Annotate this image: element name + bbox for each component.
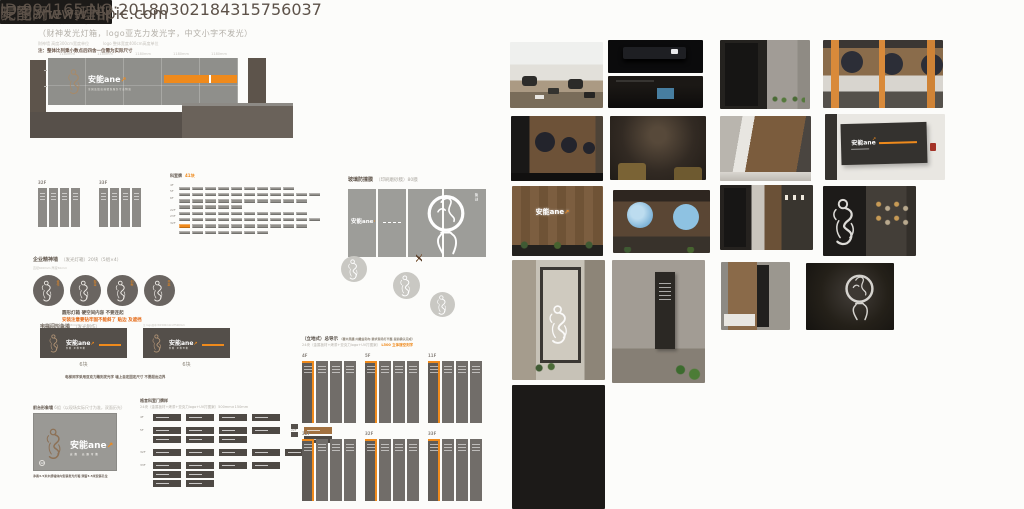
pillar-right: [248, 58, 266, 105]
plate-row: 5F22F: [140, 427, 310, 445]
brand-logo: 安能ane↗安能 无限可能: [66, 338, 95, 350]
photo-standing-sign: [512, 385, 605, 509]
floor-banner-group: 32F: [38, 180, 80, 227]
door-plate: [219, 414, 247, 421]
room-table-row: 5F: [170, 189, 320, 195]
floor-label: 23F: [170, 214, 179, 218]
photo-reception: [721, 262, 790, 330]
door-plate: [186, 462, 214, 469]
hand-ring-illustration: [410, 191, 482, 255]
door-plate-rows: 4F5F22F32F33F: [140, 414, 310, 489]
floor-label: 5F: [140, 427, 148, 432]
spirit-circle: 共赢: [144, 275, 175, 306]
door-plate: [186, 449, 214, 456]
brand-logo: 安能ane↗ 全国连锁高端精准服务专业物流: [88, 67, 131, 91]
floor-label: 33F: [140, 462, 148, 467]
banner-panel: [316, 361, 328, 423]
photo-logo-board: 安能ane↗: [825, 114, 945, 180]
table-title: 科室牌: [170, 173, 182, 178]
banner-panel: [407, 439, 419, 501]
floor-label: 4F: [140, 414, 148, 419]
photo-wall-sign: [612, 260, 705, 383]
brand-logo-text: 安能ane: [88, 75, 121, 84]
door-plate: [186, 480, 214, 487]
plate-stack: [186, 427, 214, 445]
frosted-door: [540, 267, 581, 363]
caishen-figure-icon: [48, 330, 61, 356]
directory-group: 5F: [365, 353, 419, 423]
photo-dark-logo-wall: [610, 116, 706, 180]
dim-note: W1500mm×H500mm 厚80mm: [40, 323, 79, 327]
watermark-circle: [393, 272, 420, 299]
door-plate: [219, 436, 247, 443]
floor-label: 22F: [170, 208, 179, 212]
room-chip: [309, 218, 320, 222]
floor-label: 32F: [38, 180, 80, 185]
banner-row: [365, 439, 419, 501]
banner-panel: [470, 439, 482, 501]
plate-stack: [252, 427, 280, 436]
banner-panel: [316, 439, 328, 501]
floor-label: 32F: [365, 431, 419, 436]
door-plate: [252, 462, 280, 469]
brand-logo-subtext: 安能 无限可能: [70, 452, 113, 456]
plate-stack: [153, 427, 181, 445]
brand-logo-subtext: 安能 无限可能: [169, 347, 198, 350]
banner-panel: [344, 361, 356, 423]
section-title-row: 玻璃防撞膜（印刷磨砂膜）80膜: [348, 166, 498, 185]
arrow-icon: ↗: [107, 441, 114, 450]
logo-board: 安能ane↗: [840, 122, 927, 165]
banner-panel: [393, 439, 405, 501]
banner-row: [302, 361, 356, 423]
room-chip: [257, 199, 268, 203]
spirit-wall-section: 企业精神墙（发光灯箱）20块（5组×4） 直径600mm 厚度50mm 合作担当…: [33, 246, 223, 323]
brand-logo-subtext: 全国连锁高端精准服务专业物流: [88, 87, 131, 91]
caishen-figure-icon: [77, 278, 92, 303]
stock-id-watermark: ID:994165 NO:20180302184315756037: [0, 0, 322, 19]
floor-label: 5F: [170, 189, 179, 193]
section-spec-row: 24块（金属板材+烤漆+亚克力logo+UV打图案） L500 立体镂空刻字: [302, 343, 487, 348]
banner-row: [99, 188, 141, 227]
banner-panel: [330, 361, 342, 423]
door-plate: [186, 414, 214, 421]
section-title-row: （立地式）总导示 （覆木黑膜 内雕金和布 要求现场打平整 提前确认完成）: [302, 336, 487, 342]
section-subspec: 直径600mm 厚度50mm: [33, 266, 223, 270]
door-plate: [219, 462, 247, 469]
caishen-figure-icon: [114, 278, 129, 303]
tick-mark: [44, 70, 47, 71]
spirit-circle: 创新: [107, 275, 138, 306]
room-chip: [296, 224, 307, 228]
directory-group: 32F: [365, 431, 419, 501]
plate-stack: [219, 449, 247, 458]
banner-panel: [302, 439, 314, 501]
door-plates-section: 格言科室门牌样 24块（金属板材+烤漆+亚克力logo+UV打图案）500mm×…: [140, 398, 310, 493]
directory-section: （立地式）总导示 （覆木黑膜 内雕金和布 要求现场打平整 提前确认完成） 24块…: [302, 336, 487, 501]
spirit-circle: 担当: [70, 275, 101, 306]
photo-lounge: [510, 42, 603, 108]
elevation-drawing: 1180mm1180mm1180mm1180mm1180mm 安能ane↗ 全国…: [30, 52, 330, 144]
dim-label: 1180mm: [162, 52, 200, 56]
plate-stack: [219, 462, 247, 471]
banner-panel: [38, 188, 47, 227]
circle-label: 合作: [56, 280, 60, 286]
section-spec: （印刷磨砂膜）80膜: [376, 178, 418, 183]
caishen-figure-icon: [44, 422, 66, 464]
section-spec: （发光灯箱）20块（5组×4）: [61, 258, 121, 263]
room-chip: [205, 231, 216, 235]
section-title: 企业精神墙: [33, 257, 58, 263]
spec-right: logo 整体宽度400cm高度单位: [103, 41, 159, 46]
room-chip: [283, 224, 294, 228]
banner-panel: [365, 361, 377, 423]
banner-row: [428, 439, 482, 501]
tick-mark: [44, 86, 47, 87]
room-plate-table: 科室牌41块 4F5F6F22F23F32F: [170, 173, 320, 233]
banner-panel: [60, 188, 69, 227]
photo-dark-interior: [608, 76, 703, 108]
plate-stack: [153, 449, 181, 458]
door-plate: [153, 471, 181, 478]
circle-label: 共赢: [167, 280, 171, 286]
door-plate: [186, 436, 214, 443]
plate-stack: [252, 414, 280, 423]
brand-logo-text: 安能ane: [351, 219, 373, 225]
room-chip: [296, 199, 307, 203]
caishen-figure-icon: [151, 278, 166, 303]
floor-label: 5F: [365, 353, 419, 358]
count-label: 6块: [143, 361, 230, 368]
design-proof-sheet: 33层形象墙1组 （财神发光灯箱，logo亚克力发光字，中文小字不发光） 财神墙…: [0, 0, 1024, 509]
section-title: （立地式）总导示: [302, 337, 338, 342]
banner-panel: [456, 361, 468, 423]
banner-panel: [428, 361, 440, 423]
banner-panel: [456, 439, 468, 501]
elevator-wall-section: 电梯间形象墙（发光制作） W1500mm×H500mm 厚80mm 注 logo…: [40, 313, 300, 332]
room-chip: [283, 199, 294, 203]
floor-banner-sets: 32F33F: [38, 180, 141, 227]
floor-label: 11F: [428, 353, 482, 358]
banner-panel: [379, 361, 391, 423]
photo-door-sign: [720, 185, 813, 250]
floor-label: 32F: [140, 449, 148, 454]
glass-film-panel: 安能ane· 聚创: [348, 189, 486, 257]
directory-group: 11F: [428, 353, 482, 423]
dim-label: 1180mm: [48, 52, 86, 56]
room-chip: [192, 231, 203, 235]
photo-pillar-sign: [720, 40, 810, 109]
sheet-subtitle: （财神发光灯箱，logo亚克力发光字，中文小字不发光）: [38, 28, 338, 39]
banner-row: [302, 439, 356, 501]
section-title: 格言科室门牌样: [140, 398, 310, 404]
door-plate: [252, 449, 280, 456]
floor-label: 32F: [170, 221, 179, 225]
room-table-row: [170, 227, 320, 233]
plate-stack: [153, 414, 181, 423]
directory-group: 4F: [302, 353, 356, 423]
plate-stack: [186, 462, 214, 489]
plate-stack: [252, 449, 280, 458]
room-chip-grid: 4F5F6F22F23F32F: [170, 183, 320, 233]
sheet-specs: 财神墙 高度300cm宽度单位logo 整体宽度400cm高度单位: [38, 41, 338, 47]
photo-lightbox-sign: [608, 40, 703, 73]
banner-panel: [99, 188, 108, 227]
plate-stack: [219, 414, 247, 423]
plate-stack: [219, 427, 247, 445]
floor-label: 6F: [170, 196, 179, 200]
banner-panel: [365, 439, 377, 501]
table-badge: 41块: [185, 173, 195, 178]
brand-logo: 安能ane↗安能 无限可能: [70, 438, 113, 456]
banner-panel: [132, 188, 141, 227]
section-note: 电梯间字采用亚克力雕刻发光字 墙上自定固定尺寸 不要超出边界: [65, 375, 165, 380]
counter-left: [30, 112, 182, 138]
floor-label: 33F: [428, 431, 482, 436]
banner-panel: [442, 439, 454, 501]
banner-panel: [110, 188, 119, 227]
elevator-box: 安能ane↗安能 无限可能: [143, 328, 230, 358]
brand-logo-text: 安能ane: [70, 441, 107, 451]
panel-cell: 安能ane·: [348, 189, 378, 257]
section-spec: 24块（金属板材+烤漆+亚克力logo+UV打图案）: [302, 343, 380, 347]
photo-blue-circle-lightboxes: [613, 190, 710, 253]
door-plate: [186, 427, 214, 434]
directory-group: 33F: [428, 431, 482, 501]
counter-right: [182, 103, 293, 138]
plate-stack: [186, 414, 214, 423]
banner-row: [38, 188, 80, 227]
banner-panel: [344, 439, 356, 501]
brand-logo-text: 安能ane: [169, 340, 193, 347]
spec-left: 财神墙 高度300cm宽度单位: [38, 41, 89, 46]
spirit-circle: 合作: [33, 275, 64, 306]
section-spec: 24块（金属板材+烤漆+亚克力logo+UV打图案）500mm×150mm: [140, 405, 310, 410]
banner-row: [428, 361, 482, 423]
dim-note: 注 logo居中 W1500mm×H500mm: [143, 323, 185, 327]
section-spec-accent: L500 立体镂空刻字: [381, 343, 413, 347]
arrow-icon: ↗: [90, 341, 94, 347]
banner-row: [365, 361, 419, 423]
elevator-box: 安能ane↗安能 无限可能: [40, 328, 127, 358]
photo-corridor-logo: [720, 116, 811, 181]
photo-office-circles: [823, 40, 943, 108]
room-table-row: 23F: [170, 214, 320, 220]
stamp-mark: [416, 254, 422, 262]
section-title: 前台形象墙: [33, 405, 53, 410]
brand-logo-text: 安能ane↗: [536, 207, 570, 217]
door-plate: [153, 427, 181, 434]
room-chip: [244, 199, 255, 203]
room-chip: [270, 224, 281, 228]
photo-ring-glass: [806, 263, 894, 330]
front-wall-box: 安能ane↗安能 无限可能 12: [33, 413, 117, 471]
directory-groups: 4F5F11F22F32F33F: [302, 353, 487, 501]
photo-frosted-door: [512, 260, 605, 380]
banner-panel: [330, 439, 342, 501]
circle-label: 担当: [93, 280, 97, 286]
banner-panel: [407, 361, 419, 423]
brand-logo: 安能ane↗安能 无限可能: [169, 338, 198, 350]
door-plate: [186, 471, 214, 478]
section-spec: 6组（以现场实际尺寸为准，双面历光）: [54, 405, 125, 410]
dim-label: 1180mm: [86, 52, 124, 56]
caishen-figure-icon: [151, 330, 164, 356]
room-chip: [270, 199, 281, 203]
door-plate: [252, 414, 280, 421]
note-badge: 12: [39, 460, 45, 466]
spirit-circles: 合作担当创新共赢: [33, 275, 223, 306]
banner-panel: [71, 188, 80, 227]
dim-label: 1180mm: [200, 52, 238, 56]
floor-label: 33F: [99, 180, 141, 185]
room-chip: [244, 231, 255, 235]
vertical-sign: [655, 272, 675, 348]
photo-etched-glass: [823, 186, 916, 256]
room-chip: [309, 193, 320, 197]
photo-wood-logo-wall: 安能ane↗: [512, 186, 603, 256]
banner-panel: [428, 439, 440, 501]
room-table-row: 6F: [170, 196, 320, 202]
door-plate: [153, 449, 181, 456]
banner-panel: [121, 188, 130, 227]
floor-banner-group: 33F: [99, 180, 141, 227]
directory-group: 22F: [302, 431, 356, 501]
floor-label: 22F: [302, 431, 356, 436]
panel-cell: [378, 189, 408, 257]
section-title: 玻璃防撞膜: [348, 177, 373, 183]
banner-panel: [470, 361, 482, 423]
feature-wall: 安能ane↗ 全国连锁高端精准服务专业物流: [48, 58, 238, 105]
door-plate: [219, 449, 247, 456]
plate-stack: [252, 462, 280, 471]
banner-panel: [379, 439, 391, 501]
banner-panel: [442, 361, 454, 423]
margin-chips: [291, 424, 298, 440]
glass-film-section: 玻璃防撞膜（印刷磨砂膜）80膜 安能ane· 聚创: [348, 166, 498, 257]
dimension-labels: 1180mm1180mm1180mm1180mm1180mm: [48, 52, 238, 56]
plate-row: 33F: [140, 462, 310, 489]
room-chip: [179, 231, 190, 235]
brand-logo-subtext: 安能 无限可能: [66, 347, 95, 350]
count-label: 6块: [40, 361, 127, 368]
section-title-note: （覆木黑膜 内雕金和布 要求现场打平整 提前确认完成）: [339, 337, 414, 341]
banner-panel: [393, 361, 405, 423]
door-plate: [252, 427, 280, 434]
room-chip: [218, 231, 229, 235]
section-title-row: 企业精神墙（发光灯箱）20块（5组×4）: [33, 246, 223, 265]
banner-panel: [49, 188, 58, 227]
circle-label: 创新: [130, 280, 134, 286]
door-plate: [219, 427, 247, 434]
door-plate: [153, 414, 181, 421]
arrow-icon: ↗: [193, 341, 197, 347]
watermark-circle: [430, 292, 455, 317]
dim-label: 1180mm: [124, 52, 162, 56]
photo-wood-wall-circles: [511, 116, 603, 181]
floor-label: 4F: [170, 183, 179, 187]
orange-dot-icon: ·: [373, 219, 375, 225]
orange-stripe: [164, 75, 237, 83]
plate-row: 4F: [140, 414, 310, 423]
table-title-row: 科室牌41块: [170, 173, 320, 179]
arrow-icon: ↗: [121, 76, 127, 84]
caishen-figure-icon: [66, 62, 84, 100]
watermark-circle: [341, 256, 367, 282]
door-plate: [153, 480, 181, 487]
door-plate: [153, 462, 181, 469]
brand-logo-text: 安能ane: [66, 340, 90, 347]
plate-row: 32F: [140, 449, 310, 458]
brand-logo: 安能ane·: [351, 217, 375, 225]
plate-stack: [153, 462, 181, 489]
room-chip: [257, 231, 268, 235]
banner-panel: [302, 361, 314, 423]
floor-label: 4F: [302, 353, 356, 358]
arrow-icon: ↗: [871, 137, 875, 143]
door-plate: [153, 436, 181, 443]
caishen-figure-icon: [40, 278, 55, 303]
plate-stack: [186, 449, 214, 458]
room-chip: [231, 231, 242, 235]
arrow-icon: ↗: [564, 209, 569, 216]
